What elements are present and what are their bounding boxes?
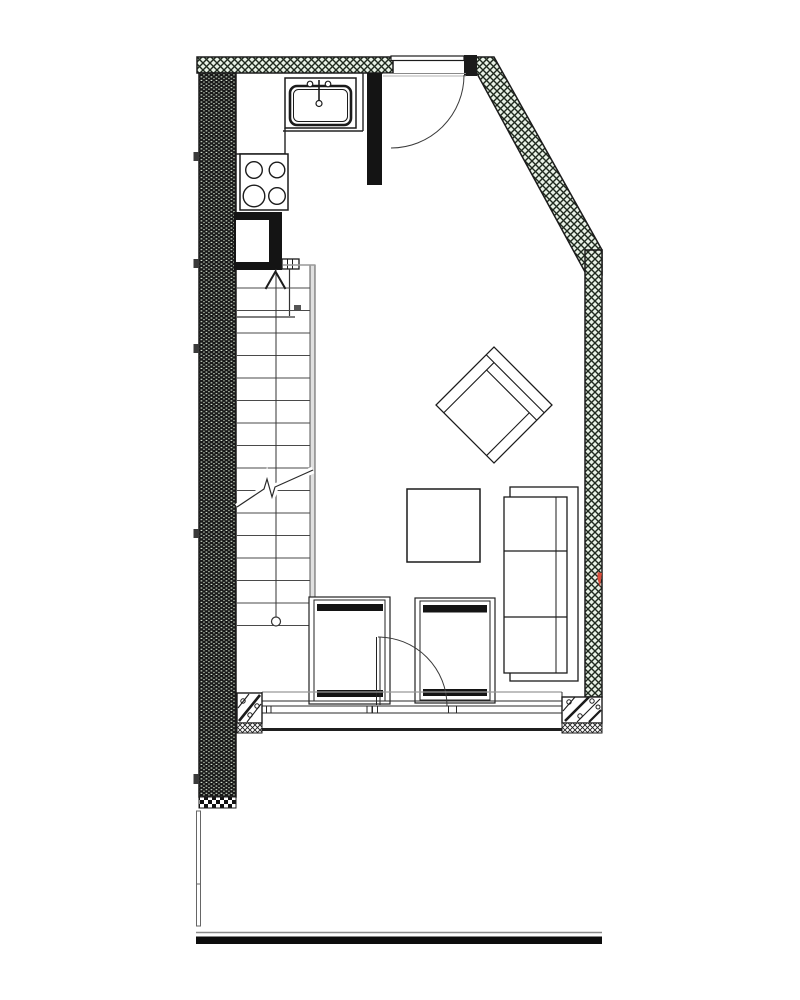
stair-rail	[310, 265, 315, 598]
door-jamb-block	[464, 55, 477, 76]
balcony-slab-edge	[262, 728, 562, 731]
sofa-seats	[504, 497, 567, 673]
faucet-knob-right	[325, 81, 331, 87]
burner	[269, 188, 286, 205]
window-left-outer	[309, 597, 390, 704]
footing-right	[562, 697, 602, 733]
burner	[246, 162, 263, 179]
gravel-right	[562, 723, 602, 733]
entry-door-leaf	[391, 56, 464, 61]
wall-tick	[194, 344, 200, 353]
wall-tick	[194, 529, 200, 538]
coffee-table	[407, 489, 480, 562]
window-left-glazing-top	[317, 604, 383, 611]
gravel-left	[237, 723, 262, 733]
faucet-base	[316, 101, 322, 107]
footing-left	[237, 693, 262, 733]
floor-plan-svg	[0, 0, 800, 1000]
faucet-knob-left	[307, 81, 313, 87]
floor-plan-page	[0, 0, 800, 1000]
burner	[269, 162, 285, 178]
walkline-end-circle	[272, 617, 281, 626]
party-wall-left	[199, 73, 236, 797]
window-right-glazing-top	[423, 605, 487, 613]
wall-tick	[194, 152, 200, 161]
handrail-tick	[294, 305, 301, 310]
burner	[243, 185, 265, 207]
window-right-outer	[415, 598, 495, 703]
wall-tick	[194, 259, 200, 268]
stair-jamb	[282, 259, 299, 269]
balcony-divider	[367, 706, 372, 713]
exterior-wall-right	[585, 250, 602, 697]
balcony-divider	[373, 706, 378, 713]
site-line-thick	[196, 937, 602, 945]
duct-inner	[236, 220, 269, 262]
party-wall-foot-checker	[199, 797, 236, 808]
interior-wall-segment	[367, 73, 382, 185]
balcony-divider	[449, 706, 457, 713]
railing-line	[197, 811, 201, 926]
wall-tick	[194, 774, 200, 784]
window-left-glazing-bottom	[317, 690, 383, 697]
balcony-divider	[267, 706, 272, 713]
paper-background	[0, 0, 800, 1000]
exterior-wall-top	[197, 57, 393, 73]
